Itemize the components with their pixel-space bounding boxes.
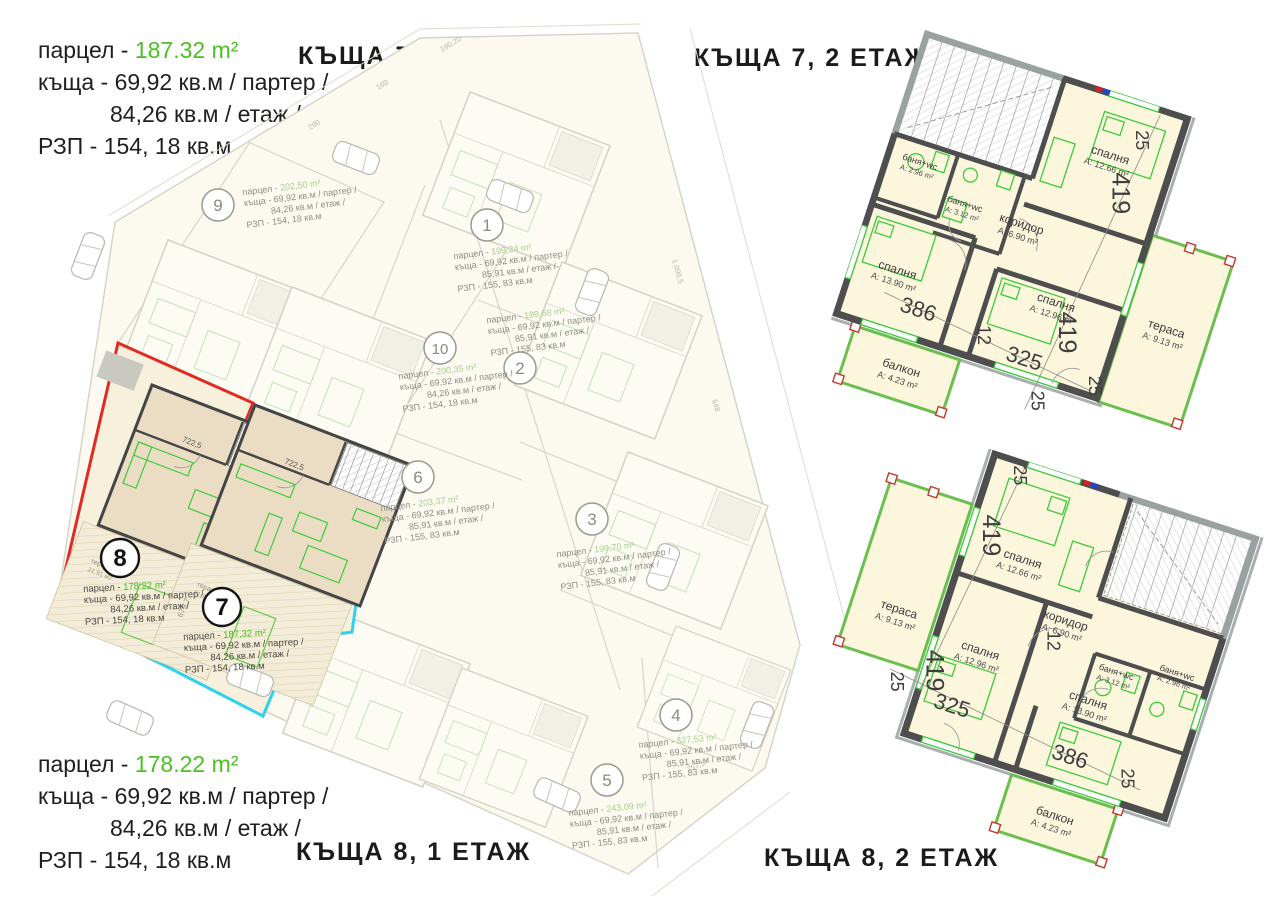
dim-419: 419	[1106, 172, 1135, 214]
svg-text:10: 10	[432, 341, 449, 358]
plot-circle-10: 10	[424, 332, 456, 364]
plot-circle-5: 5	[591, 764, 623, 796]
dim-25: 25	[1084, 376, 1105, 396]
plot7-label: парцел - 187,32 m² къща - 69,92 кв.м / п…	[183, 624, 335, 676]
svg-text:1: 1	[482, 216, 491, 235]
dim-419: 419	[919, 650, 948, 692]
dim-12: 12	[1042, 631, 1063, 651]
plot-circle-4: 4	[660, 699, 692, 731]
dim-12: 12	[973, 325, 994, 345]
svg-text:4: 4	[671, 706, 680, 725]
svg-text:3: 3	[587, 510, 596, 529]
dim-25: 25	[886, 672, 907, 692]
plot-circle-6: 6	[402, 461, 434, 493]
svg-text:8: 8	[113, 545, 126, 572]
plot8-label: парцел - 178.22 m² къща - 69,92 кв.м / п…	[83, 576, 235, 628]
svg-text:6: 6	[413, 468, 422, 487]
svg-text:5: 5	[602, 771, 611, 790]
plot-circle-3: 3	[576, 503, 608, 535]
plan-sheet: парцел - 187.32 m² къща - 69,92 кв.м / п…	[0, 0, 1280, 906]
svg-text:9: 9	[213, 196, 222, 215]
dim-25: 25	[1117, 768, 1138, 788]
dim-419: 419	[1052, 312, 1081, 354]
dim-419: 419	[976, 515, 1005, 557]
dim-25: 25	[1009, 465, 1030, 485]
plot-circle-1: 1	[471, 209, 503, 241]
plot-circle-8: 8	[101, 539, 139, 577]
dim-25: 25	[1026, 391, 1047, 411]
dim-25: 25	[1131, 130, 1152, 150]
plot-circle-9: 9	[202, 189, 234, 221]
